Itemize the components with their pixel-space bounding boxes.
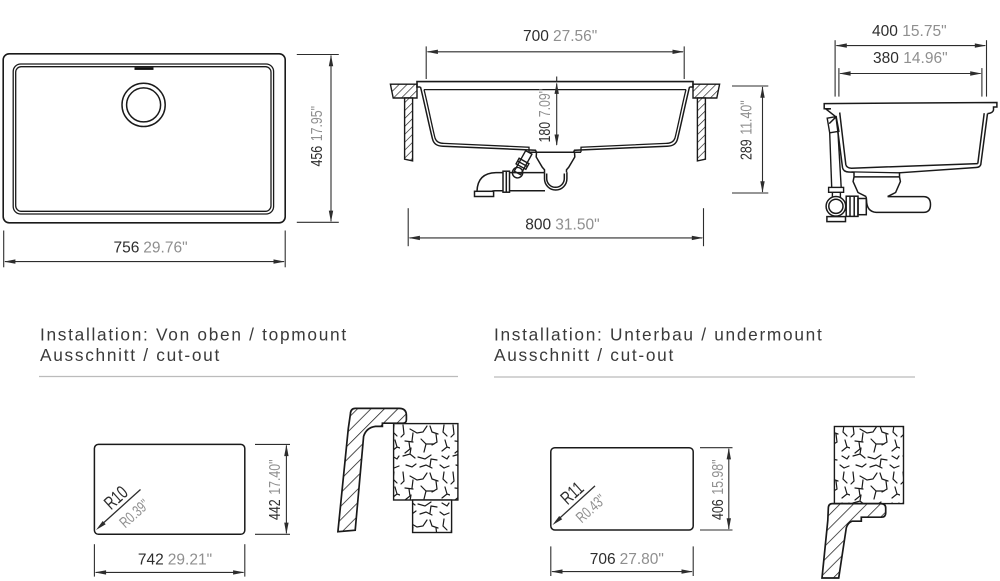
svg-text:180: 180: [536, 122, 554, 143]
svg-text:289: 289: [737, 139, 755, 160]
svg-text:706: 706: [590, 551, 616, 568]
svg-text:Installation: Von oben / topmo: Installation: Von oben / topmount: [40, 325, 348, 345]
svg-text:14.96": 14.96": [903, 50, 947, 67]
svg-text:17.40": 17.40": [266, 459, 284, 494]
svg-text:27.80": 27.80": [620, 551, 664, 568]
svg-text:11.40": 11.40": [737, 100, 755, 134]
svg-text:380: 380: [873, 50, 899, 67]
svg-text:7.09": 7.09": [536, 89, 554, 118]
svg-text:Ausschnitt / cut-out: Ausschnitt / cut-out: [494, 345, 675, 365]
svg-text:Ausschnitt / cut-out: Ausschnitt / cut-out: [40, 345, 221, 365]
svg-text:31.50": 31.50": [555, 217, 599, 234]
svg-text:742: 742: [138, 552, 164, 569]
svg-text:15.98": 15.98": [709, 459, 727, 494]
svg-text:800: 800: [525, 217, 551, 234]
svg-text:Installation: Unterbau / under: Installation: Unterbau / undermount: [494, 325, 823, 345]
svg-text:15.75": 15.75": [902, 23, 946, 40]
svg-text:17.95": 17.95": [308, 106, 326, 141]
svg-text:27.56": 27.56": [553, 28, 597, 45]
svg-text:456: 456: [308, 146, 326, 167]
svg-text:756: 756: [114, 239, 140, 256]
svg-text:29.76": 29.76": [143, 239, 187, 256]
svg-text:406: 406: [709, 499, 727, 520]
svg-text:400: 400: [872, 23, 898, 40]
svg-text:700: 700: [523, 28, 549, 45]
svg-text:29.21": 29.21": [168, 552, 212, 569]
svg-text:442: 442: [266, 499, 284, 520]
